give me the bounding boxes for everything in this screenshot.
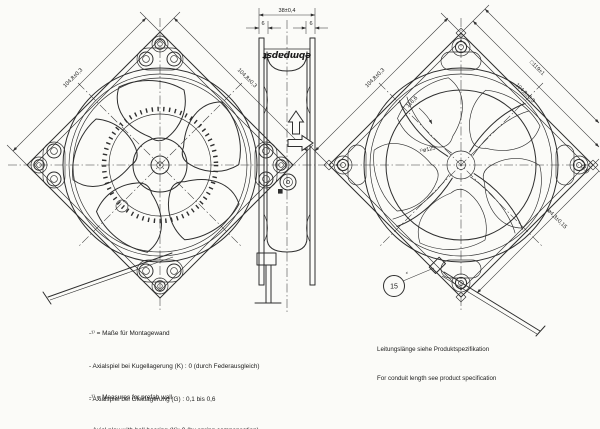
rear-dim-venturi-label: 116,6 [405, 95, 419, 109]
rear-dim-left-label: 104,8±0,3 [364, 67, 386, 89]
side-view: ebmpapst 38±0,4 6 [246, 8, 328, 314]
fan-technical-drawing: 104,8±0,3 104,8±0,3 ebmpapst [0, 0, 600, 429]
rotation-direction-arrow [288, 136, 313, 151]
side-dim-flange-left-label: 6 [261, 21, 264, 27]
note-de-line: -¹⁾ = Maße für Montagewand [89, 328, 318, 339]
balloon-number: 15 [390, 284, 398, 291]
side-dim-depth-label: 38±0,4 [278, 8, 295, 14]
handling-head-part [429, 257, 445, 273]
note-en-line: -¹⁾ = Measures for prefab wall [89, 392, 310, 403]
side-dim-flange-right-label: 6 [309, 21, 312, 27]
balloon-ref: ³⁾ [406, 271, 409, 276]
rear-view: 15 ³⁾ 104,8±0,3 104,8±0,3 □119±1 ø4,3±0,… [309, 5, 600, 336]
rear-impeller [367, 72, 549, 250]
notes-english: -¹⁾ = Measures for prefab wall - Axial p… [89, 370, 310, 429]
cable-note-de: Leitungslänge siehe Produktspezifikation [377, 345, 496, 355]
balance-hole [116, 200, 128, 212]
balloon-item-15: 15 ³⁾ [384, 268, 435, 297]
cable-note-en: For conduit length see product specifica… [377, 374, 496, 384]
airflow-direction-arrow [289, 111, 304, 134]
note-en-line: - Axial play with ball bearing (K): 0 (b… [89, 425, 310, 429]
front-lead-wire [43, 253, 173, 304]
rear-dim-cutout-label: ¹⁾ø125 [419, 144, 436, 155]
brand-logo: ebmpapst [262, 50, 311, 60]
cable-length-note: Leitungslänge siehe Produktspezifikation… [377, 326, 496, 402]
rear-dim-square-label: □119±1 [528, 60, 545, 77]
rear-dim-hole-label: ø4,3±0,15 [546, 208, 568, 230]
